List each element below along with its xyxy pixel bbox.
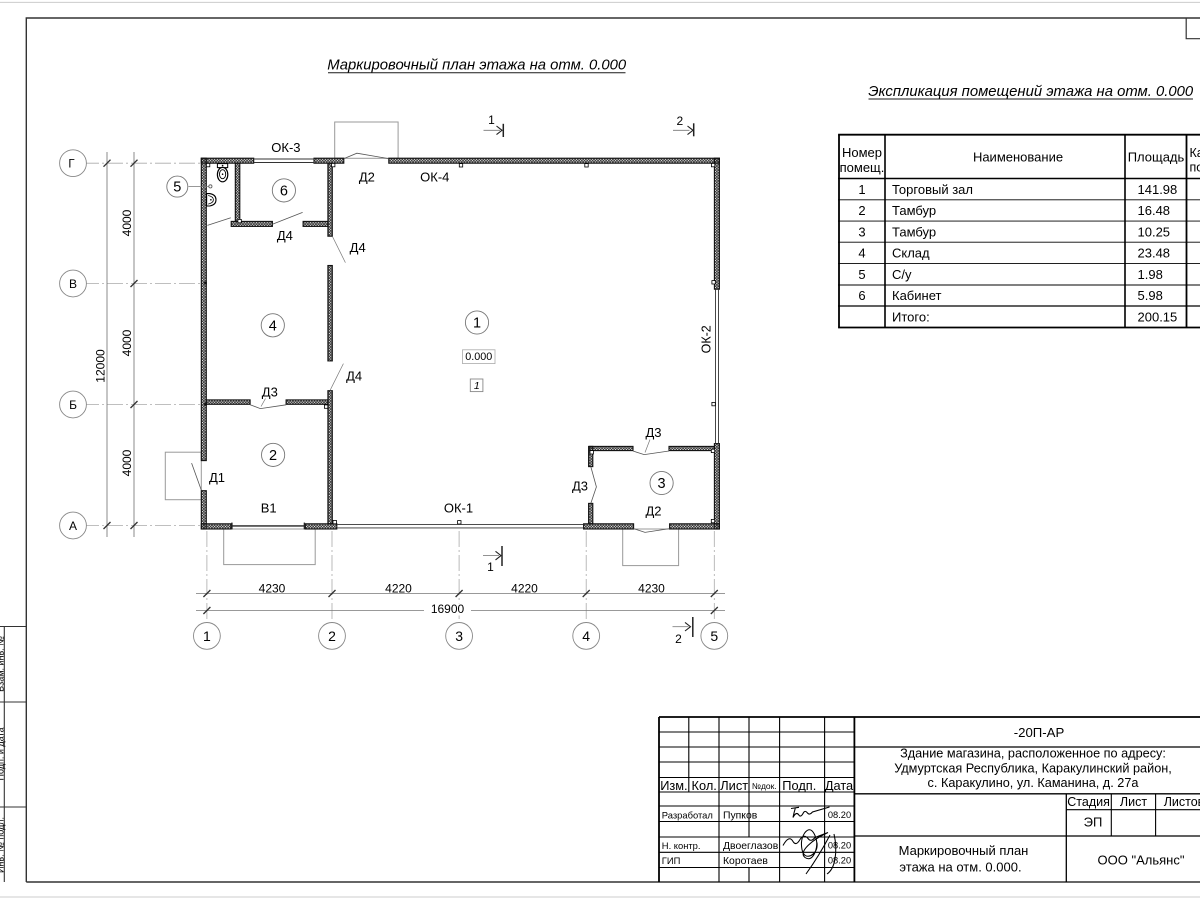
svg-text:№док.: №док. [752, 781, 777, 791]
svg-text:Д3: Д3 [262, 385, 278, 400]
svg-text:4: 4 [269, 319, 277, 335]
svg-text:с. Каракулино, ул. Каманина, д: с. Каракулино, ул. Каманина, д. 27а [928, 776, 1140, 790]
svg-text:Тамбур: Тамбур [892, 203, 936, 218]
svg-text:4220: 4220 [385, 581, 412, 595]
svg-text:1: 1 [473, 316, 481, 332]
svg-text:4220: 4220 [511, 581, 538, 595]
svg-text:Удмуртская Республика, Каракул: Удмуртская Республика, Каракулинский рай… [894, 761, 1172, 775]
svg-text:ООО "Альянс": ООО "Альянс" [1098, 853, 1185, 868]
svg-text:6: 6 [858, 288, 865, 303]
svg-text:В1: В1 [261, 501, 277, 516]
svg-text:В: В [69, 277, 77, 291]
svg-text:141.98: 141.98 [1138, 182, 1178, 197]
svg-text:08.20: 08.20 [828, 810, 851, 820]
svg-text:Дата: Дата [825, 778, 854, 793]
svg-text:Кабинет: Кабинет [892, 288, 941, 303]
svg-text:1.98: 1.98 [1138, 267, 1163, 282]
svg-text:-20П-АР: -20П-АР [1014, 725, 1065, 740]
svg-text:Д3: Д3 [645, 425, 661, 440]
svg-text:16.48: 16.48 [1138, 203, 1171, 218]
svg-text:4000: 4000 [120, 329, 134, 356]
svg-text:Площадь: Площадь [1128, 150, 1185, 165]
svg-text:2: 2 [676, 114, 683, 128]
svg-text:Взам. инв. №: Взам. инв. № [0, 636, 6, 692]
svg-text:Кол.: Кол. [692, 778, 717, 793]
svg-text:0.000: 0.000 [465, 351, 492, 363]
svg-text:Д2: Д2 [359, 170, 375, 185]
svg-text:Здание магазина, расположенное: Здание магазина, расположенное по адресу… [900, 747, 1166, 761]
svg-text:ЭП: ЭП [1084, 815, 1103, 830]
svg-text:08.20: 08.20 [828, 856, 851, 866]
svg-text:С/у: С/у [892, 267, 912, 282]
svg-text:5: 5 [173, 180, 181, 196]
svg-text:Д2: Д2 [645, 504, 661, 519]
svg-text:Маркировочный план: Маркировочный план [899, 843, 1029, 858]
svg-text:Д4: Д4 [277, 228, 293, 243]
svg-text:Стадия: Стадия [1067, 795, 1110, 809]
svg-text:ГИП: ГИП [662, 855, 681, 866]
svg-text:Торговый зал: Торговый зал [892, 182, 973, 197]
svg-text:1: 1 [858, 182, 865, 197]
svg-text:Д3: Д3 [572, 478, 588, 493]
svg-text:Коротаев: Коротаев [723, 856, 768, 867]
svg-text:2: 2 [675, 632, 682, 646]
svg-text:Инв. № подл.: Инв. № подл. [0, 817, 6, 873]
svg-text:Лист: Лист [720, 778, 748, 793]
svg-text:12000: 12000 [93, 349, 107, 383]
svg-text:Номер: Номер [842, 145, 882, 160]
svg-text:16900: 16900 [431, 602, 465, 616]
svg-text:Склад: Склад [892, 246, 930, 261]
svg-text:1: 1 [488, 113, 495, 127]
svg-text:ОК-1: ОК-1 [444, 500, 473, 515]
svg-text:Двоеглазов: Двоеглазов [723, 841, 779, 852]
svg-text:Тамбур: Тамбур [892, 224, 936, 239]
svg-text:Б: Б [69, 398, 77, 412]
svg-text:Наименование: Наименование [973, 150, 1063, 165]
svg-text:6: 6 [280, 184, 288, 200]
svg-text:10.25: 10.25 [1138, 224, 1171, 239]
svg-text:3: 3 [658, 476, 666, 492]
svg-text:3: 3 [455, 628, 463, 644]
svg-text:по: по [1190, 161, 1200, 175]
svg-text:ОК-2: ОК-2 [700, 325, 714, 353]
svg-text:4230: 4230 [259, 581, 286, 595]
svg-text:Маркировочный план этажа на от: Маркировочный план этажа на отм. 0.000 [327, 58, 627, 74]
svg-text:Д1: Д1 [209, 470, 225, 485]
svg-text:Листов: Листов [1164, 795, 1200, 809]
svg-text:1: 1 [203, 628, 211, 644]
svg-text:23.48: 23.48 [1138, 246, 1171, 261]
svg-text:Пупков: Пупков [723, 811, 758, 822]
svg-text:Г: Г [68, 158, 75, 170]
svg-text:2: 2 [328, 628, 336, 644]
svg-text:помещ.: помещ. [840, 160, 885, 175]
svg-text:ОК-3: ОК-3 [271, 140, 300, 155]
svg-text:этажа на отм. 0.000.: этажа на отм. 0.000. [899, 859, 1021, 874]
svg-text:Изм.: Изм. [660, 778, 687, 793]
svg-text:200.15: 200.15 [1138, 309, 1178, 324]
svg-text:Д4: Д4 [346, 368, 362, 383]
svg-text:Ка: Ка [1190, 146, 1200, 160]
svg-text:5: 5 [858, 267, 865, 282]
svg-text:08.20: 08.20 [828, 841, 851, 851]
svg-text:Подп.: Подп. [782, 778, 816, 793]
svg-text:3: 3 [858, 224, 865, 239]
svg-text:Н. контр.: Н. контр. [662, 840, 701, 851]
svg-text:5: 5 [710, 628, 718, 644]
svg-text:Лист: Лист [1120, 795, 1147, 809]
svg-text:1: 1 [487, 560, 494, 574]
svg-text:А: А [69, 519, 77, 533]
svg-text:Экспликация помещений этажа на: Экспликация помещений этажа на отм. 0.00… [868, 84, 1194, 100]
svg-text:4000: 4000 [120, 209, 134, 236]
svg-text:4: 4 [582, 628, 590, 644]
svg-text:4000: 4000 [120, 449, 134, 476]
svg-text:ОК-4: ОК-4 [420, 170, 449, 185]
svg-text:4230: 4230 [638, 581, 665, 595]
svg-text:5.98: 5.98 [1138, 288, 1163, 303]
svg-text:2: 2 [269, 448, 277, 464]
svg-text:Разработал: Разработал [662, 810, 713, 821]
svg-text:1: 1 [474, 380, 480, 392]
svg-text:Д4: Д4 [350, 240, 366, 255]
svg-text:2: 2 [858, 203, 865, 218]
svg-text:Итого:: Итого: [892, 309, 930, 324]
svg-text:Подп. и дата: Подп. и дата [0, 727, 6, 780]
svg-text:4: 4 [858, 246, 865, 261]
